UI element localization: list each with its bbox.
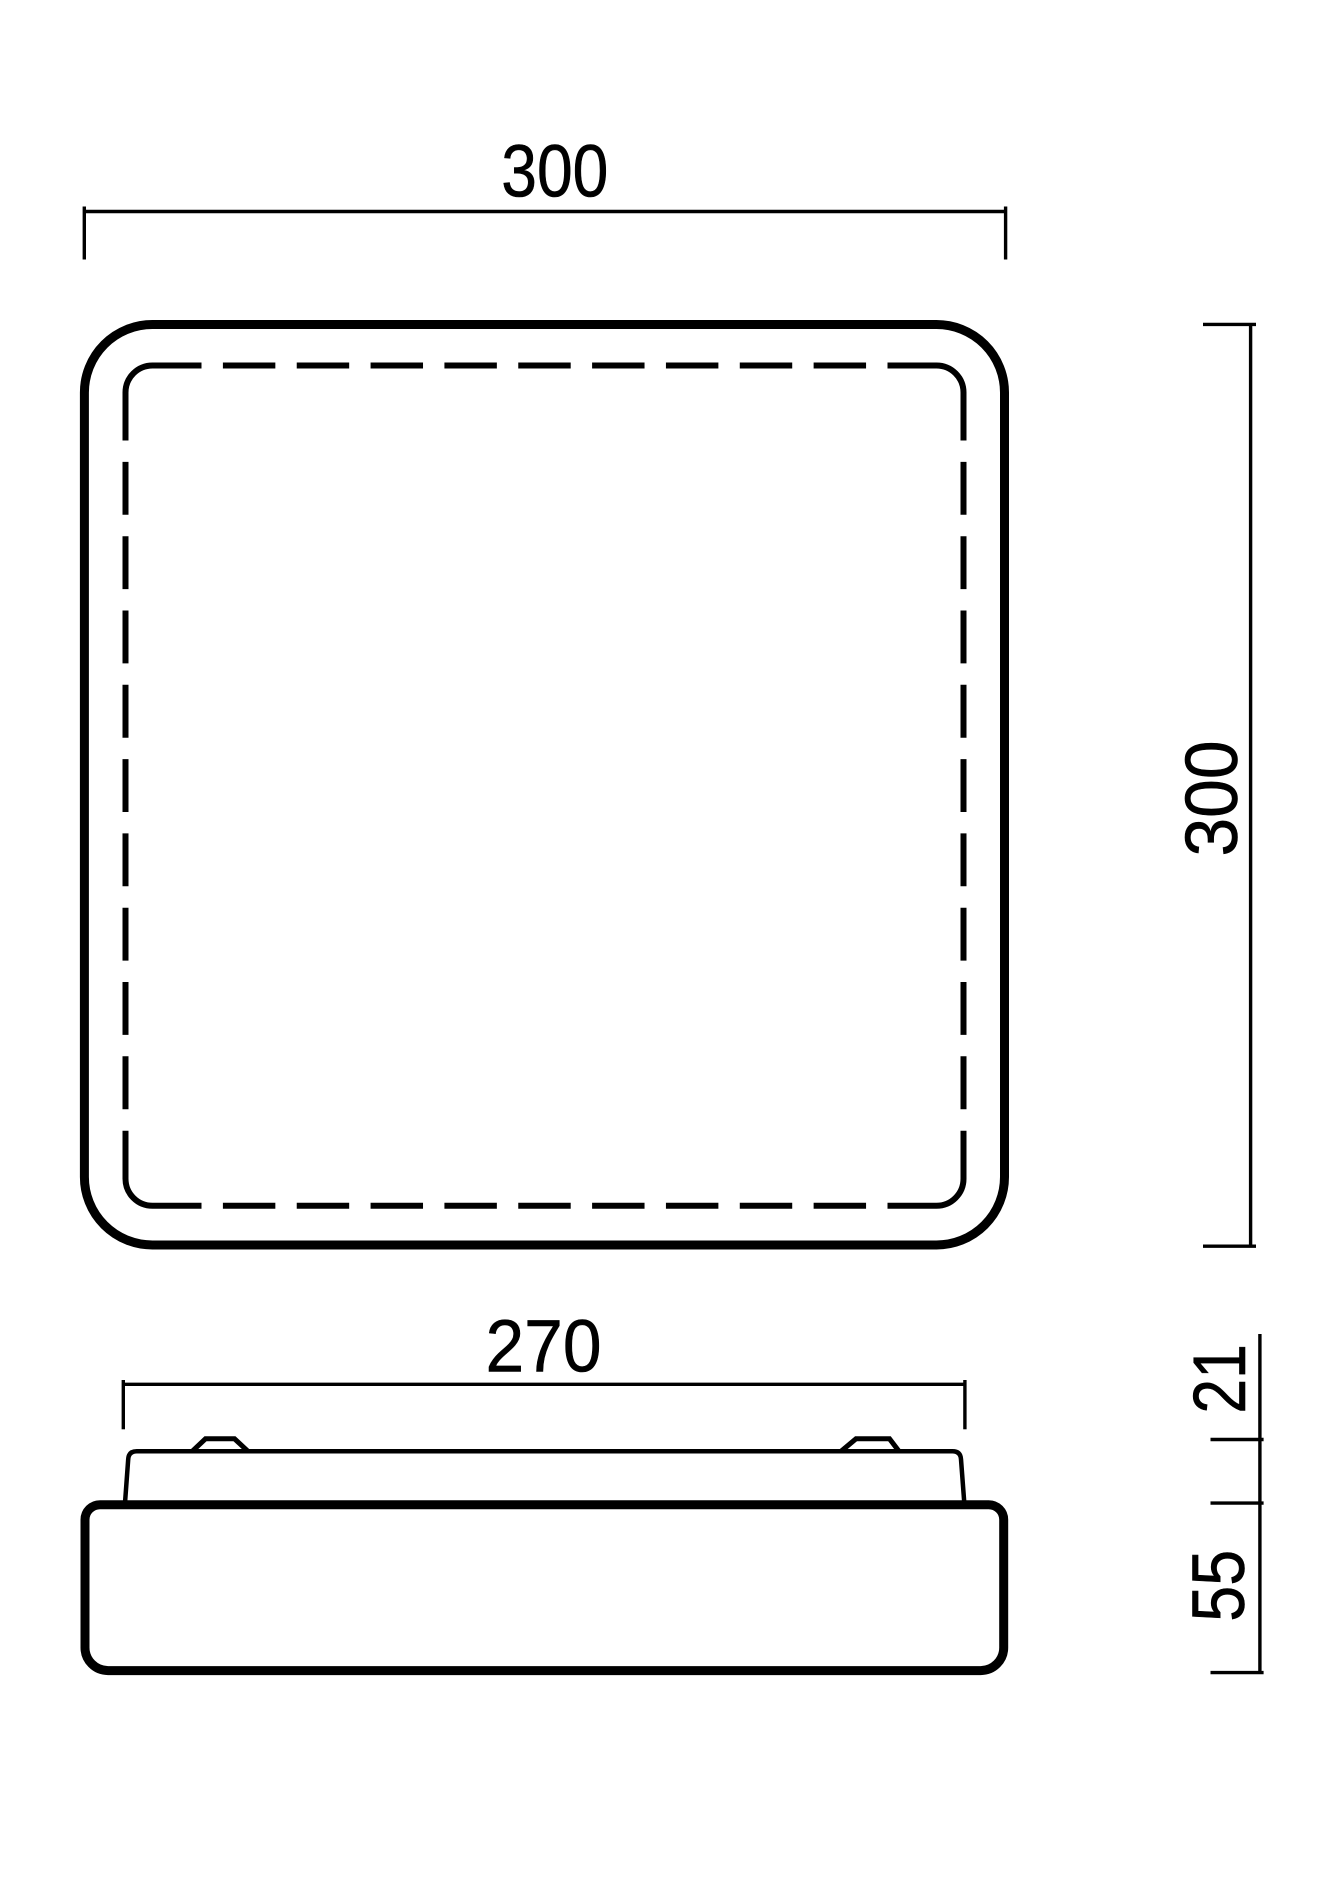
svg-text:300: 300 (1169, 741, 1253, 857)
svg-text:55: 55 (1176, 1550, 1260, 1622)
svg-text:300: 300 (501, 129, 608, 213)
svg-text:270: 270 (486, 1303, 602, 1387)
svg-text:21: 21 (1177, 1344, 1261, 1414)
